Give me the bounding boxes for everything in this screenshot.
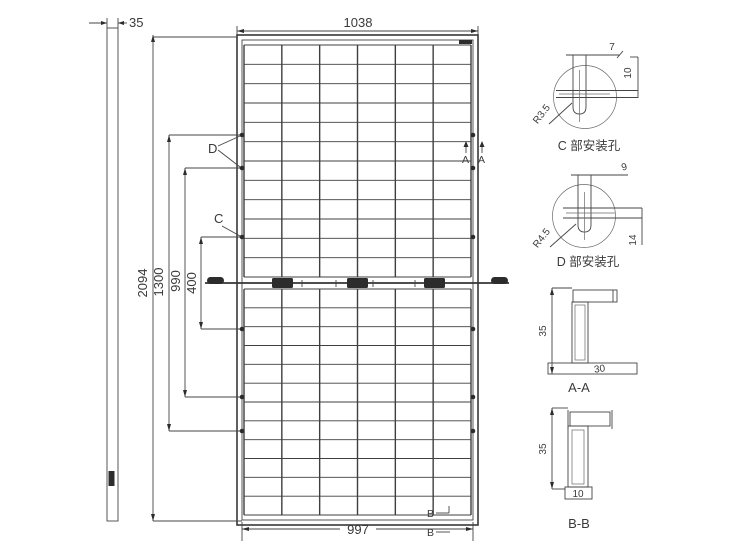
detail-d-title: D 部安装孔 (557, 254, 620, 269)
side-view: 35 (89, 15, 143, 521)
detail-d-circle (553, 185, 616, 248)
junction-box-1 (272, 278, 293, 288)
callout-c-label: C (214, 211, 223, 226)
aa-height: 35 (538, 325, 549, 337)
callout-c: C (214, 211, 240, 236)
bb-title: B-B (568, 516, 590, 531)
detail-d-slot-width: 9 (620, 161, 629, 173)
dim-hole-outer: 1300 (151, 268, 166, 297)
section-b-label-1: B (427, 508, 434, 520)
detail-c-slot-width: 7 (609, 42, 615, 53)
cable-connector-right (491, 277, 508, 284)
detail-d: 9 14 R4.5 D 部安装孔 (531, 161, 642, 269)
junction-box-3 (424, 278, 445, 288)
detail-c: 7 10 R3.5 C 部安装孔 (531, 42, 638, 153)
dim-hole-inner: 400 (184, 272, 199, 294)
section-bb: 35 10 B-B (538, 408, 612, 531)
dim-frame-thickness: 35 (129, 15, 143, 30)
junction-box-2 (347, 278, 368, 288)
junction-box-side (109, 471, 115, 486)
callout-d-label: D (208, 141, 217, 156)
junction-assembly (205, 277, 509, 288)
bb-width: 10 (572, 489, 584, 500)
drawing-svg: 35 1038 2094 (0, 0, 738, 554)
bb-height: 35 (538, 443, 549, 455)
aa-web (572, 302, 588, 363)
nameplate-mark (459, 40, 472, 44)
section-mark-a: A A (462, 141, 485, 166)
aa-width: 30 (593, 363, 606, 376)
detail-d-slot-length: 14 (628, 234, 639, 246)
detail-c-radius: R3.5 (531, 102, 553, 126)
detail-c-title: C 部安装孔 (558, 138, 621, 153)
dim-module-width: 1038 (344, 15, 373, 30)
aa-title: A-A (568, 380, 590, 395)
detail-c-slot-length: 10 (623, 67, 634, 79)
callout-d: D (208, 136, 240, 167)
dim-left-stack: 2094 1300 990 400 (135, 35, 242, 521)
cable-connector-left (207, 277, 224, 284)
section-mark-b: B B (427, 506, 450, 539)
bb-top-flange (570, 412, 610, 426)
section-aa: 35 30 A-A (538, 288, 637, 395)
dim-top-width: 1038 (237, 15, 478, 35)
dim-back-width-label: 997 (347, 522, 369, 537)
section-a-label-1: A (462, 154, 469, 166)
bb-web (568, 426, 588, 487)
engineering-drawing: 35 1038 2094 (0, 0, 738, 554)
section-a-label-2: A (478, 154, 485, 166)
dim-hole-mid: 990 (168, 270, 183, 292)
aa-top-flange (573, 290, 617, 302)
dim-module-height: 2094 (135, 269, 150, 298)
detail-c-circle (554, 66, 617, 129)
